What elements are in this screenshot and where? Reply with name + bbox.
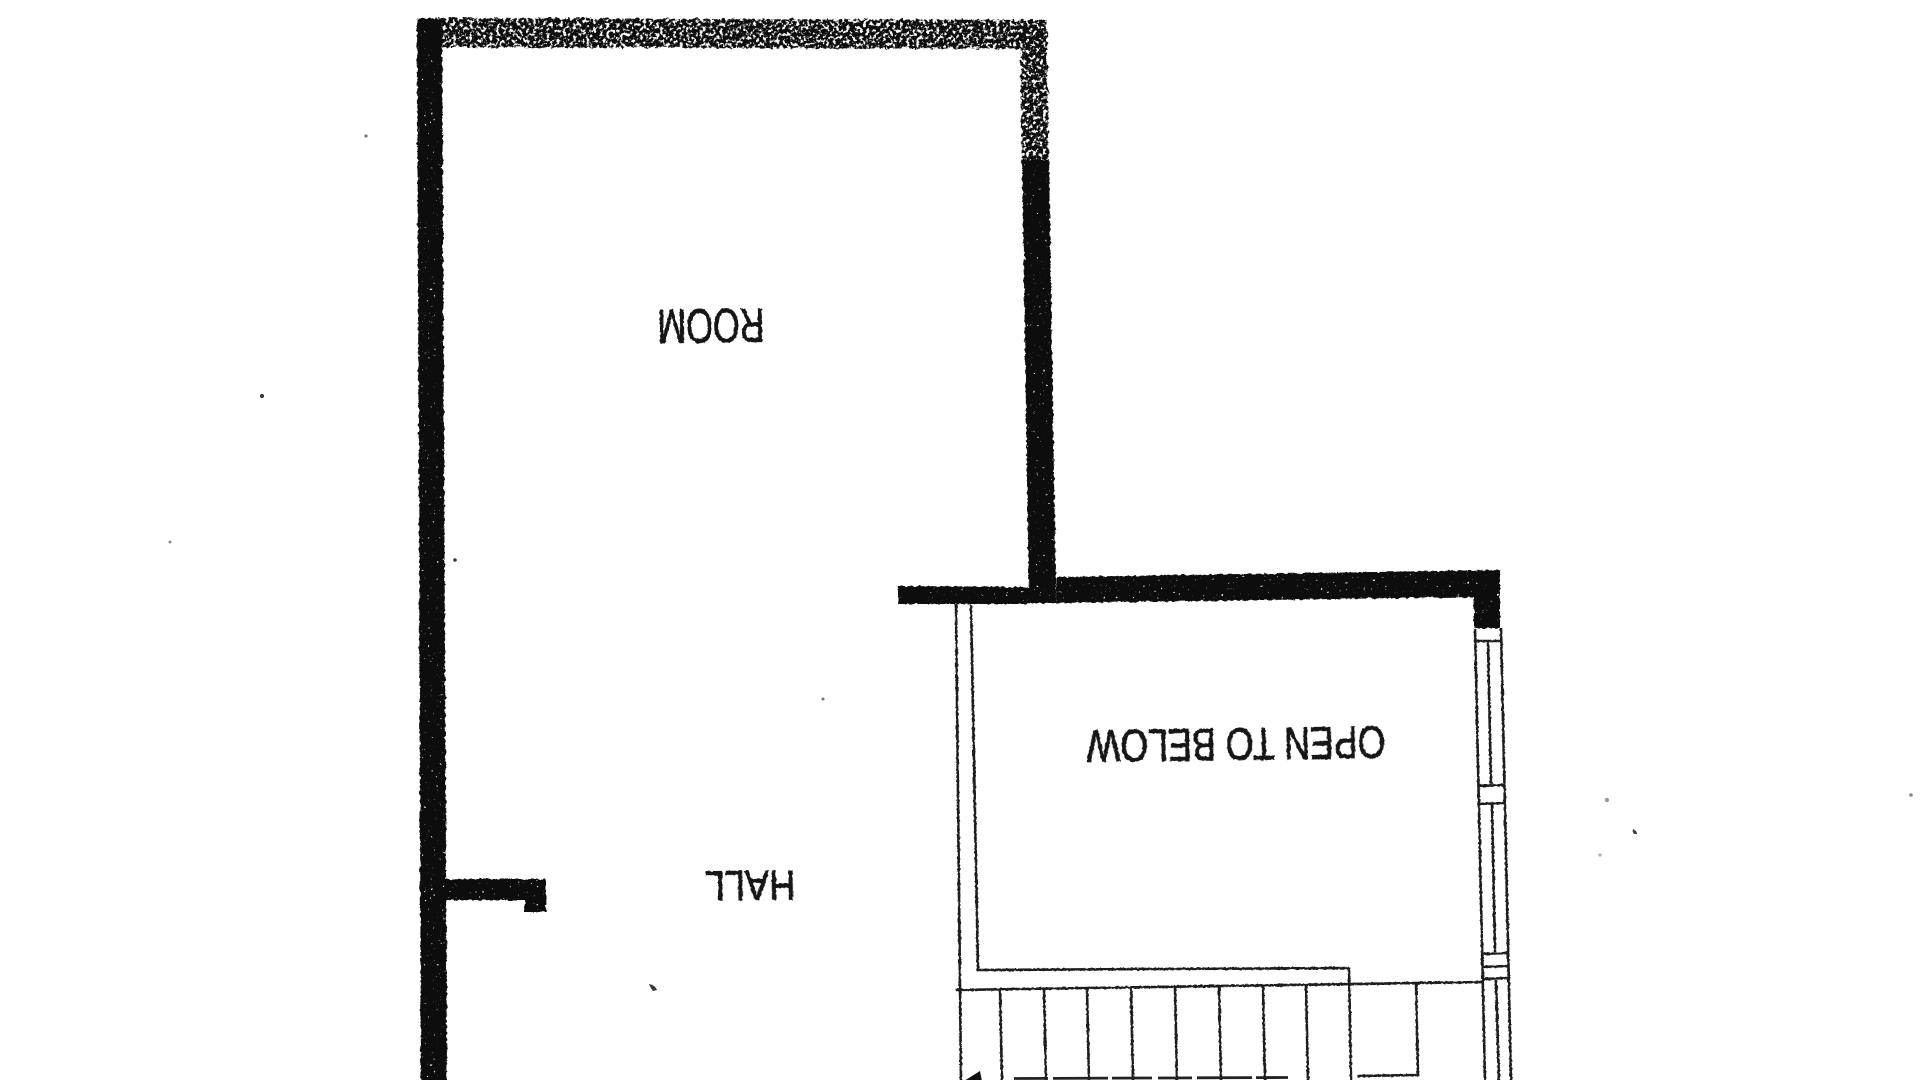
svg-text:OPEN TO BELOW: OPEN TO BELOW: [1086, 716, 1386, 771]
svg-text:ROOM: ROOM: [657, 298, 765, 354]
svg-text:HALL: HALL: [704, 861, 795, 909]
